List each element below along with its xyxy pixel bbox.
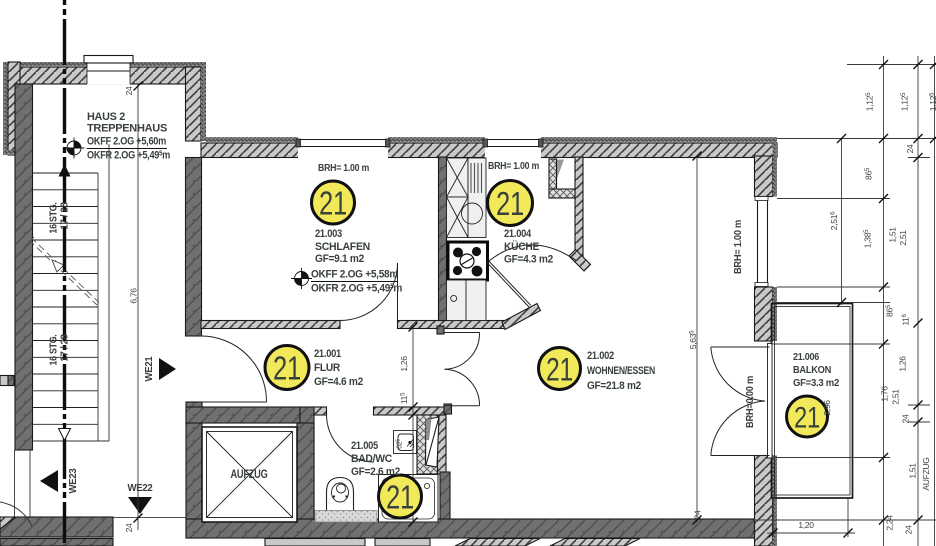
svg-text:1,20: 1,20 — [798, 520, 814, 530]
svg-text:21.002: 21.002 — [587, 350, 614, 362]
svg-text:BRH=0.00 m: BRH=0.00 m — [744, 376, 756, 428]
svg-text:AUFZUG: AUFZUG — [921, 457, 931, 490]
svg-text:2,51: 2,51 — [891, 389, 901, 405]
svg-text:21: 21 — [386, 479, 414, 516]
svg-text:BRH= 1.00 m: BRH= 1.00 m — [318, 162, 369, 174]
svg-text:6,76: 6,76 — [129, 288, 139, 304]
svg-text:21: 21 — [496, 185, 524, 222]
svg-text:24: 24 — [124, 523, 134, 532]
svg-text:FLUR: FLUR — [314, 362, 340, 374]
svg-text:2,96: 2,96 — [822, 400, 832, 416]
svg-text:OKFF 2.OG +5,58m: OKFF 2.OG +5,58m — [311, 269, 398, 281]
svg-text:BALKON: BALKON — [793, 364, 831, 376]
svg-text:GF=3.3 m2: GF=3.3 m2 — [793, 377, 839, 389]
svg-text:WE21: WE21 — [143, 356, 155, 381]
svg-text:21: 21 — [546, 352, 573, 388]
svg-text:1,26: 1,26 — [898, 356, 908, 372]
svg-text:WE22: WE22 — [128, 482, 153, 494]
svg-text:21.003: 21.003 — [315, 228, 342, 240]
svg-text:SCHLAFEN: SCHLAFEN — [315, 241, 370, 253]
svg-text:OKFR 2.OG +5,495m: OKFR 2.OG +5,495m — [87, 150, 170, 162]
svg-text:24: 24 — [901, 414, 911, 423]
svg-text:GF=4.3 m2: GF=4.3 m2 — [504, 254, 553, 266]
svg-text:21.005: 21.005 — [351, 440, 378, 452]
svg-text:BRH= 1.00 m: BRH= 1.00 m — [488, 160, 539, 172]
svg-text:GF=2.6 m2: GF=2.6 m2 — [351, 466, 400, 478]
svg-text:1,125: 1,125 — [928, 92, 936, 111]
svg-text:17 / 28: 17 / 28 — [60, 202, 71, 230]
svg-text:AUFZUG: AUFZUG — [231, 469, 268, 481]
svg-text:GF=9.1 m2: GF=9.1 m2 — [315, 253, 364, 265]
svg-text:WE23: WE23 — [67, 468, 79, 493]
svg-text:OKFF 2.OG +5,60m: OKFF 2.OG +5,60m — [87, 136, 166, 148]
svg-text:BRH= 1.00 m: BRH= 1.00 m — [732, 220, 744, 274]
svg-text:1,51: 1,51 — [888, 227, 898, 243]
svg-text:BAD/WC: BAD/WC — [351, 453, 392, 465]
svg-text:1,76: 1,76 — [880, 386, 890, 402]
svg-text:GF=21.8 m2: GF=21.8 m2 — [587, 380, 641, 392]
svg-text:2,24: 2,24 — [885, 515, 895, 531]
svg-text:HAUS 2: HAUS 2 — [87, 111, 125, 123]
svg-text:21: 21 — [319, 185, 347, 222]
svg-text:21: 21 — [273, 350, 301, 387]
svg-text:21.001: 21.001 — [314, 348, 341, 360]
svg-text:24: 24 — [693, 510, 703, 519]
svg-text:WOHNEN/ESSEN: WOHNEN/ESSEN — [587, 365, 655, 377]
svg-text:TREPPENHAUS: TREPPENHAUS — [87, 123, 167, 135]
svg-text:21.004: 21.004 — [504, 228, 532, 240]
svg-text:1,26: 1,26 — [399, 356, 409, 372]
svg-text:24: 24 — [904, 525, 914, 534]
svg-text:1,51: 1,51 — [908, 463, 918, 479]
svg-text:OKFR 2.OG +5,495m: OKFR 2.OG +5,495m — [311, 283, 402, 295]
svg-text:24: 24 — [124, 86, 134, 95]
svg-text:2,51: 2,51 — [898, 230, 908, 246]
svg-text:KÜCHE: KÜCHE — [504, 240, 539, 253]
svg-text:21: 21 — [794, 402, 820, 435]
svg-text:24: 24 — [905, 144, 915, 153]
svg-text:17 / 28: 17 / 28 — [60, 334, 71, 362]
svg-text:16 STG.: 16 STG. — [49, 202, 60, 233]
svg-text:21.006: 21.006 — [793, 351, 819, 363]
svg-text:16 STG.: 16 STG. — [49, 334, 60, 365]
svg-text:GF=4.6 m2: GF=4.6 m2 — [314, 376, 363, 388]
